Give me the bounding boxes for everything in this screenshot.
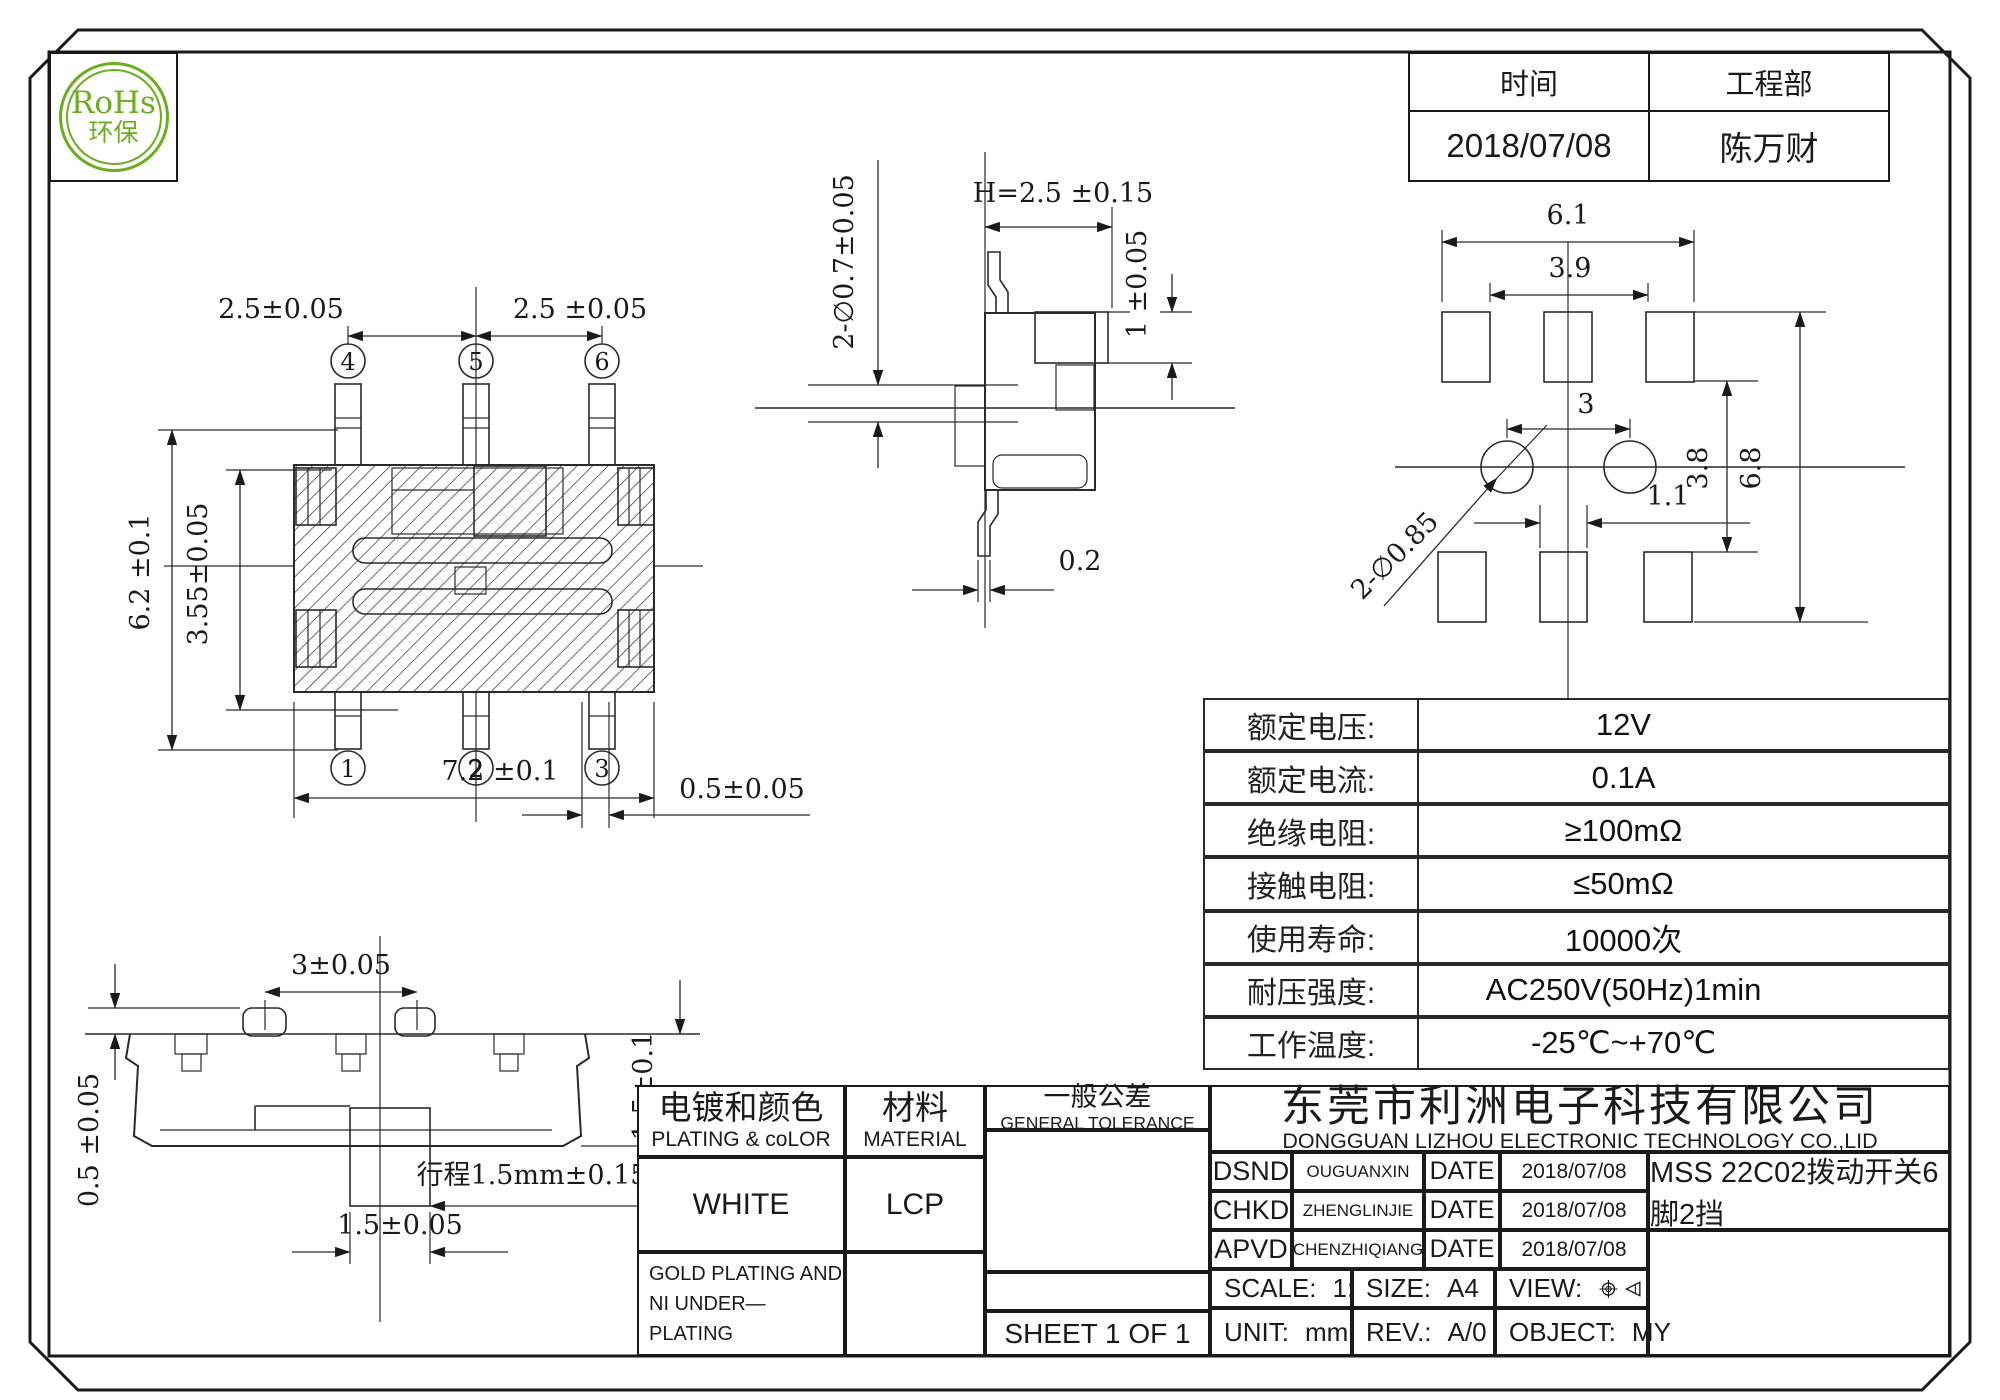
dim-inner-width: 3.9 (1549, 253, 1592, 284)
size-value: A4 (1447, 1273, 1479, 1304)
part-title-empty (1648, 1230, 1950, 1356)
table-row: 绝缘电阻: ≥100mΩ (1203, 804, 1950, 857)
dim-body-height: 6.2 ±0.1 (125, 513, 156, 630)
front-shell (126, 1034, 589, 1146)
company-name-cn: 东莞市利洲电子科技有限公司 (1281, 1085, 1879, 1129)
plating-note: GOLD PLATING AND NI UNDER—PLATING (637, 1252, 845, 1356)
company-banner: 东莞市利洲电子科技有限公司 DONGGUAN LIZHOU ELECTRONIC… (1210, 1085, 1950, 1152)
side-pad (955, 386, 985, 466)
unit-cell: UNIT: mm (1210, 1308, 1352, 1356)
footprint-view: 6.1 3.9 3 2-∅0.85 1.1 3.8 6.8 (1345, 200, 1905, 698)
front-view: 3±0.05 0.5 ±0.05 (74, 936, 702, 1322)
time-header: 时间 (1410, 54, 1648, 110)
front-pin-stubs (175, 1034, 524, 1071)
tolerance-header: 一般公差 GENERAL TOLERANCE (985, 1085, 1210, 1130)
dim-actuator-height: H=2.5 ±0.15 (973, 178, 1153, 209)
spec-value: -25℃~+70℃ (1419, 1019, 1948, 1068)
spec-value: 0.1A (1419, 753, 1948, 802)
pins-bottom (335, 692, 615, 749)
spec-table: 额定电压: 12V 额定电流: 0.1A 绝缘电阻: ≥100mΩ 接触电阻: … (1203, 698, 1950, 1070)
side-knob (1035, 312, 1108, 363)
table-row: 额定电流: 0.1A (1203, 751, 1950, 804)
scale-cell: SCALE: 1:1 (1210, 1269, 1352, 1308)
spec-value: AC250V(50Hz)1min (1419, 966, 1948, 1015)
apvd-name: CHENZHIQIANG (1292, 1230, 1424, 1269)
plating-header-en: PLATING & coLOR (651, 1127, 830, 1153)
dim-outer-height: 6.8 (1736, 447, 1767, 490)
dim-body-width: 7.2 ±0.1 (441, 756, 558, 787)
top-view: 4 5 6 1 2 3 2.5±0.05 2.5 ±0.05 6.2 ±0.1 … (125, 287, 810, 828)
spec-label: 工作温度: (1205, 1019, 1419, 1068)
spec-value: ≤50mΩ (1419, 859, 1948, 908)
tolerance-header-cn: 一般公差 (1044, 1082, 1152, 1112)
tolerance-row-empty (985, 1272, 1210, 1311)
tolerance-body-empty (985, 1130, 1210, 1272)
dim-knob-height: 1 ±0.05 (1122, 230, 1153, 339)
chkd-label: CHKD (1210, 1191, 1292, 1230)
unit-value: mm (1305, 1317, 1348, 1348)
dim-slider-width: 1.5±0.05 (337, 1210, 463, 1241)
header-table: 时间 工程部 2018/07/08 陈万财 (1408, 52, 1890, 182)
material-note-empty (845, 1252, 985, 1356)
spec-label: 接触电阻: (1205, 859, 1419, 908)
dim-pin-thickness: 0.2 (1059, 546, 1102, 577)
spec-label: 使用寿命: (1205, 913, 1419, 962)
table-row: 接触电阻: ≤50mΩ (1203, 857, 1950, 910)
dim-row-gap: 3.8 (1683, 447, 1714, 490)
chkd-date-label: DATE (1424, 1191, 1500, 1230)
dsnd-date-value: 2018/07/08 (1500, 1152, 1648, 1191)
size-cell: SIZE: A4 (1352, 1269, 1495, 1308)
rev-cell: REV.: A/0 (1352, 1308, 1495, 1356)
chkd-date-value: 2018/07/08 (1500, 1191, 1648, 1230)
dsnd-label: DSND (1210, 1152, 1292, 1191)
spec-label: 额定电压: (1205, 700, 1419, 749)
side-view: 2-∅0.7±0.05 H=2.5 ±0.15 1 ±0.05 0.2 (755, 152, 1235, 628)
spec-value: 10000次 (1419, 913, 1948, 962)
dim-pitch-right: 2.5 ±0.05 (513, 294, 647, 325)
rohs-inner-ring-icon: RoHs 环保 (66, 69, 162, 165)
plating-header: 电镀和颜色 PLATING & coLOR (637, 1085, 845, 1157)
spec-label: 耐压强度: (1205, 966, 1419, 1015)
dim-outer-width: 6.1 (1547, 200, 1590, 231)
third-angle-projection-icon (1598, 1275, 1646, 1303)
view-label: VIEW: (1509, 1273, 1582, 1304)
front-slider (350, 1108, 430, 1206)
size-label: SIZE: (1366, 1273, 1431, 1304)
table-row: 工作温度: -25℃~+70℃ (1203, 1017, 1950, 1070)
rohs-title: RoHs (71, 87, 156, 119)
side-pin-bottom (978, 490, 998, 556)
rohs-badge: RoHs 环保 (49, 52, 178, 182)
material-header-en: MATERIAL (863, 1127, 966, 1153)
material-header-cn: 材料 (882, 1089, 948, 1127)
dim-hole-size: 2-∅0.85 (1345, 506, 1445, 606)
dim-pin-width: 0.5±0.05 (679, 774, 805, 805)
dim-bump-pitch: 3±0.05 (291, 950, 391, 981)
time-value: 2018/07/08 (1410, 112, 1648, 180)
plating-note-line1: GOLD PLATING AND (649, 1259, 842, 1289)
dept-header: 工程部 (1650, 54, 1888, 110)
object-cell: OBJECT: MY (1495, 1308, 1648, 1356)
pin-number-6: 6 (594, 348, 609, 376)
dim-inner-height: 3.55±0.05 (183, 503, 214, 646)
dim-pin-holes: 2-∅0.7±0.05 (829, 174, 860, 350)
dim-hole-pitch: 3 (1577, 389, 1594, 420)
spec-label: 绝缘电阻: (1205, 806, 1419, 855)
material-value: LCP (845, 1157, 985, 1252)
plating-note-line2: NI UNDER—PLATING (649, 1289, 843, 1349)
apvd-date-label: DATE (1424, 1230, 1500, 1269)
dim-pitch-left: 2.5±0.05 (218, 294, 344, 325)
part-title: MSS 22C02拨动开关6脚2挡 (1648, 1152, 1950, 1230)
front-bump-2 (395, 1008, 435, 1036)
object-label: OBJECT: (1509, 1317, 1616, 1348)
pin-number-1: 1 (340, 755, 355, 783)
rev-label: REV.: (1366, 1317, 1432, 1348)
pin-number-3: 3 (594, 755, 609, 783)
dsnd-date-label: DATE (1424, 1152, 1500, 1191)
dim-travel: 行程1.5mm±0.15 (417, 1160, 648, 1191)
sheet-number: SHEET 1 OF 1 (985, 1311, 1210, 1356)
dsnd-name: OUGUANXIN (1292, 1152, 1424, 1191)
object-value: MY (1632, 1317, 1671, 1348)
rohs-subtitle: 环保 (88, 119, 138, 147)
side-pin-top (988, 252, 1008, 313)
rev-value: A/0 (1448, 1317, 1487, 1348)
rohs-outer-ring-icon: RoHs 环保 (59, 62, 169, 172)
table-row: 使用寿命: 10000次 (1203, 911, 1950, 964)
plating-value: WHITE (637, 1157, 845, 1252)
view-cell: VIEW: (1495, 1269, 1648, 1308)
plating-header-cn: 电镀和颜色 (659, 1089, 824, 1127)
pin-number-4: 4 (340, 348, 355, 376)
apvd-label: APVD (1210, 1230, 1292, 1269)
dept-value: 陈万财 (1650, 112, 1888, 180)
drawing-sheet: 4 5 6 1 2 3 2.5±0.05 2.5 ±0.05 6.2 ±0.1 … (0, 0, 2000, 1400)
spec-label: 额定电流: (1205, 753, 1419, 802)
table-row: 耐压强度: AC250V(50Hz)1min (1203, 964, 1950, 1017)
spec-value: ≥100mΩ (1419, 806, 1948, 855)
pin-number-5: 5 (468, 348, 483, 376)
dim-bump-height: 0.5 ±0.05 (74, 1073, 105, 1207)
pins-top (335, 384, 615, 465)
material-header: 材料 MATERIAL (845, 1085, 985, 1157)
unit-label: UNIT: (1224, 1317, 1289, 1348)
scale-label: SCALE: (1224, 1273, 1317, 1304)
table-row: 额定电压: 12V (1203, 698, 1950, 751)
chkd-name: ZHENGLINJIE (1292, 1191, 1424, 1230)
spec-value: 12V (1419, 700, 1948, 749)
apvd-date-value: 2018/07/08 (1500, 1230, 1648, 1269)
